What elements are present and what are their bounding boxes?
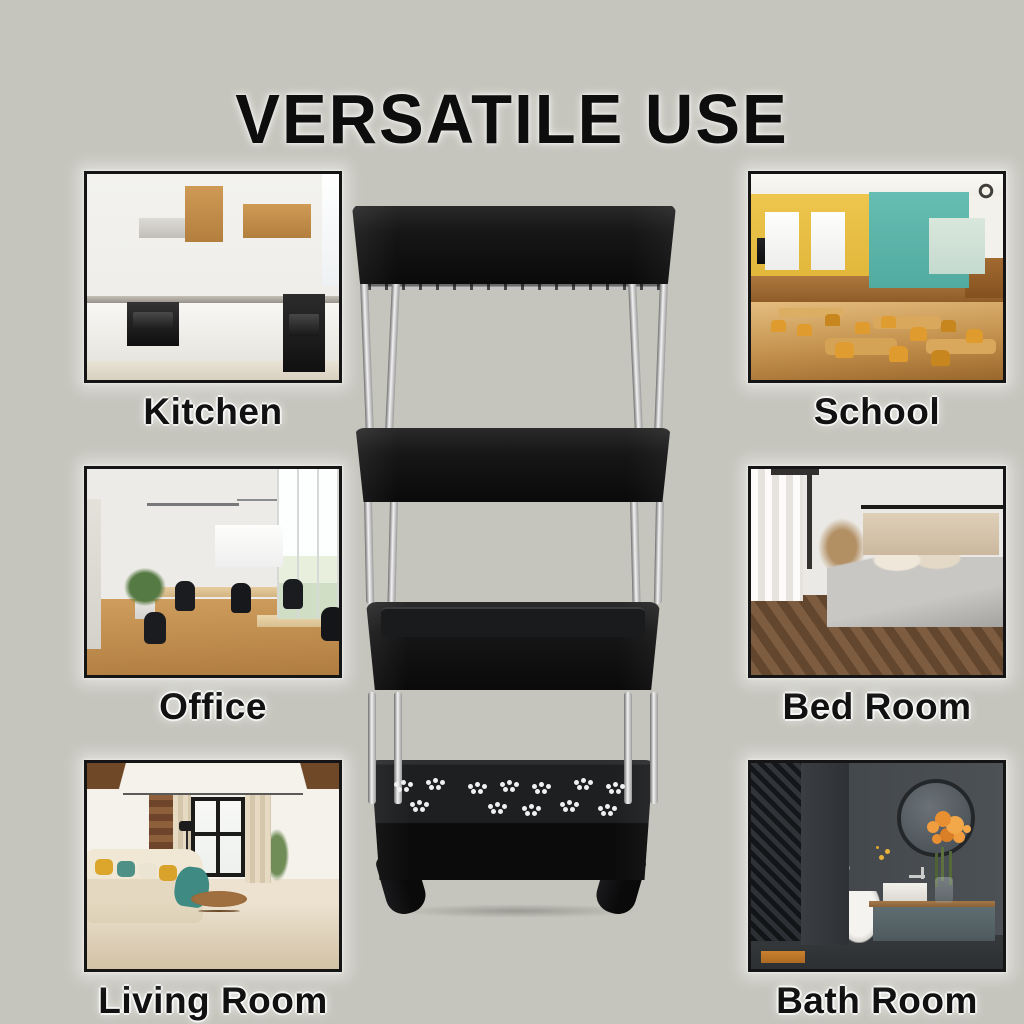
flower-perforation xyxy=(574,780,579,785)
cart-pole xyxy=(364,500,374,604)
page-title: VERSATILE USE xyxy=(0,79,1024,159)
living-room-lamp xyxy=(179,821,195,831)
room-label-living-room: Living Room xyxy=(84,980,342,1022)
kitchen-card: Kitchen xyxy=(84,171,342,433)
school-card: School xyxy=(748,171,1006,433)
office-chairs xyxy=(175,581,195,611)
cart-pole xyxy=(385,280,400,436)
kitchen-photo xyxy=(84,171,342,383)
room-label-school: School xyxy=(748,391,1006,433)
bathroom-flowers xyxy=(927,821,939,833)
office-card: Office xyxy=(84,466,342,728)
flower-perforation xyxy=(426,780,431,785)
school-tables xyxy=(779,308,843,317)
living-room-pillows xyxy=(95,859,113,875)
flower-perforation xyxy=(488,804,493,809)
office-photo xyxy=(84,466,342,678)
flower-perforation xyxy=(606,784,611,789)
cart-pole xyxy=(368,692,376,804)
cart-pole xyxy=(360,280,374,436)
cart-pole xyxy=(650,692,658,804)
flower-perforation xyxy=(468,784,473,789)
product-cart-image xyxy=(352,204,676,918)
bathroom-flower-stems xyxy=(941,847,944,881)
cart-pole xyxy=(387,500,398,604)
cart-pole xyxy=(630,500,641,604)
bedroom-photo xyxy=(748,466,1006,678)
cart-pole xyxy=(654,280,668,436)
flower-perforation xyxy=(598,806,603,811)
room-label-office: Office xyxy=(84,686,342,728)
flower-perforation xyxy=(522,806,527,811)
cart-tier-4-perforations xyxy=(382,768,642,822)
room-label-bathroom: Bath Room xyxy=(748,980,1006,1022)
flower-perforation xyxy=(532,784,537,789)
flower-perforation xyxy=(500,782,505,787)
cart-pole xyxy=(654,500,664,604)
bathroom-mirror xyxy=(897,779,975,857)
living-room-card: Living Room xyxy=(84,760,342,1022)
cart-tier-1 xyxy=(352,204,676,284)
school-chairs xyxy=(771,320,786,332)
cart-tier-3 xyxy=(366,602,660,690)
cart-pole xyxy=(628,280,643,436)
school-photo xyxy=(748,171,1006,383)
room-label-bedroom: Bed Room xyxy=(748,686,1006,728)
bedroom-card: Bed Room xyxy=(748,466,1006,728)
bathroom-vase xyxy=(935,877,953,903)
cart-tier-2 xyxy=(354,428,672,502)
advertisement-page: { "title": "VERSATILE USE", "rooms": [ {… xyxy=(0,0,1024,1024)
bathroom-photo xyxy=(748,760,1006,972)
living-room-coffee-table xyxy=(191,891,247,907)
bathroom-small-flowers xyxy=(879,855,884,860)
living-room-photo xyxy=(84,760,342,972)
kitchen-wall-oven-glass xyxy=(289,314,319,336)
flower-perforation xyxy=(410,802,415,807)
room-label-kitchen: Kitchen xyxy=(84,391,342,433)
flower-perforation xyxy=(560,802,565,807)
bathroom-card: Bath Room xyxy=(748,760,1006,1022)
flower-perforation xyxy=(394,782,399,787)
kitchen-oven-glass xyxy=(133,312,173,330)
